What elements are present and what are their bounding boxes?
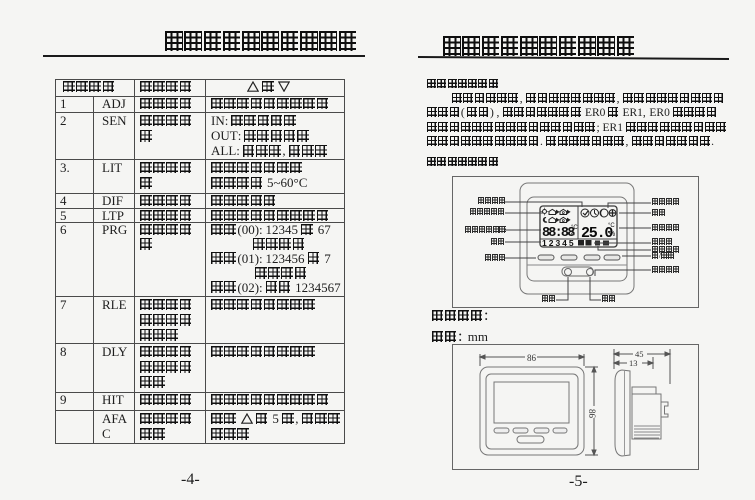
svg-text:12345: 12345 [542, 238, 576, 248]
svg-text:13: 13 [629, 358, 638, 368]
svg-text:%: % [609, 231, 615, 238]
svg-text:86: 86 [587, 409, 597, 419]
svg-text:°C: °C [608, 223, 615, 229]
svg-text:86: 86 [527, 353, 537, 363]
svg-text:°C: °C [571, 225, 578, 231]
